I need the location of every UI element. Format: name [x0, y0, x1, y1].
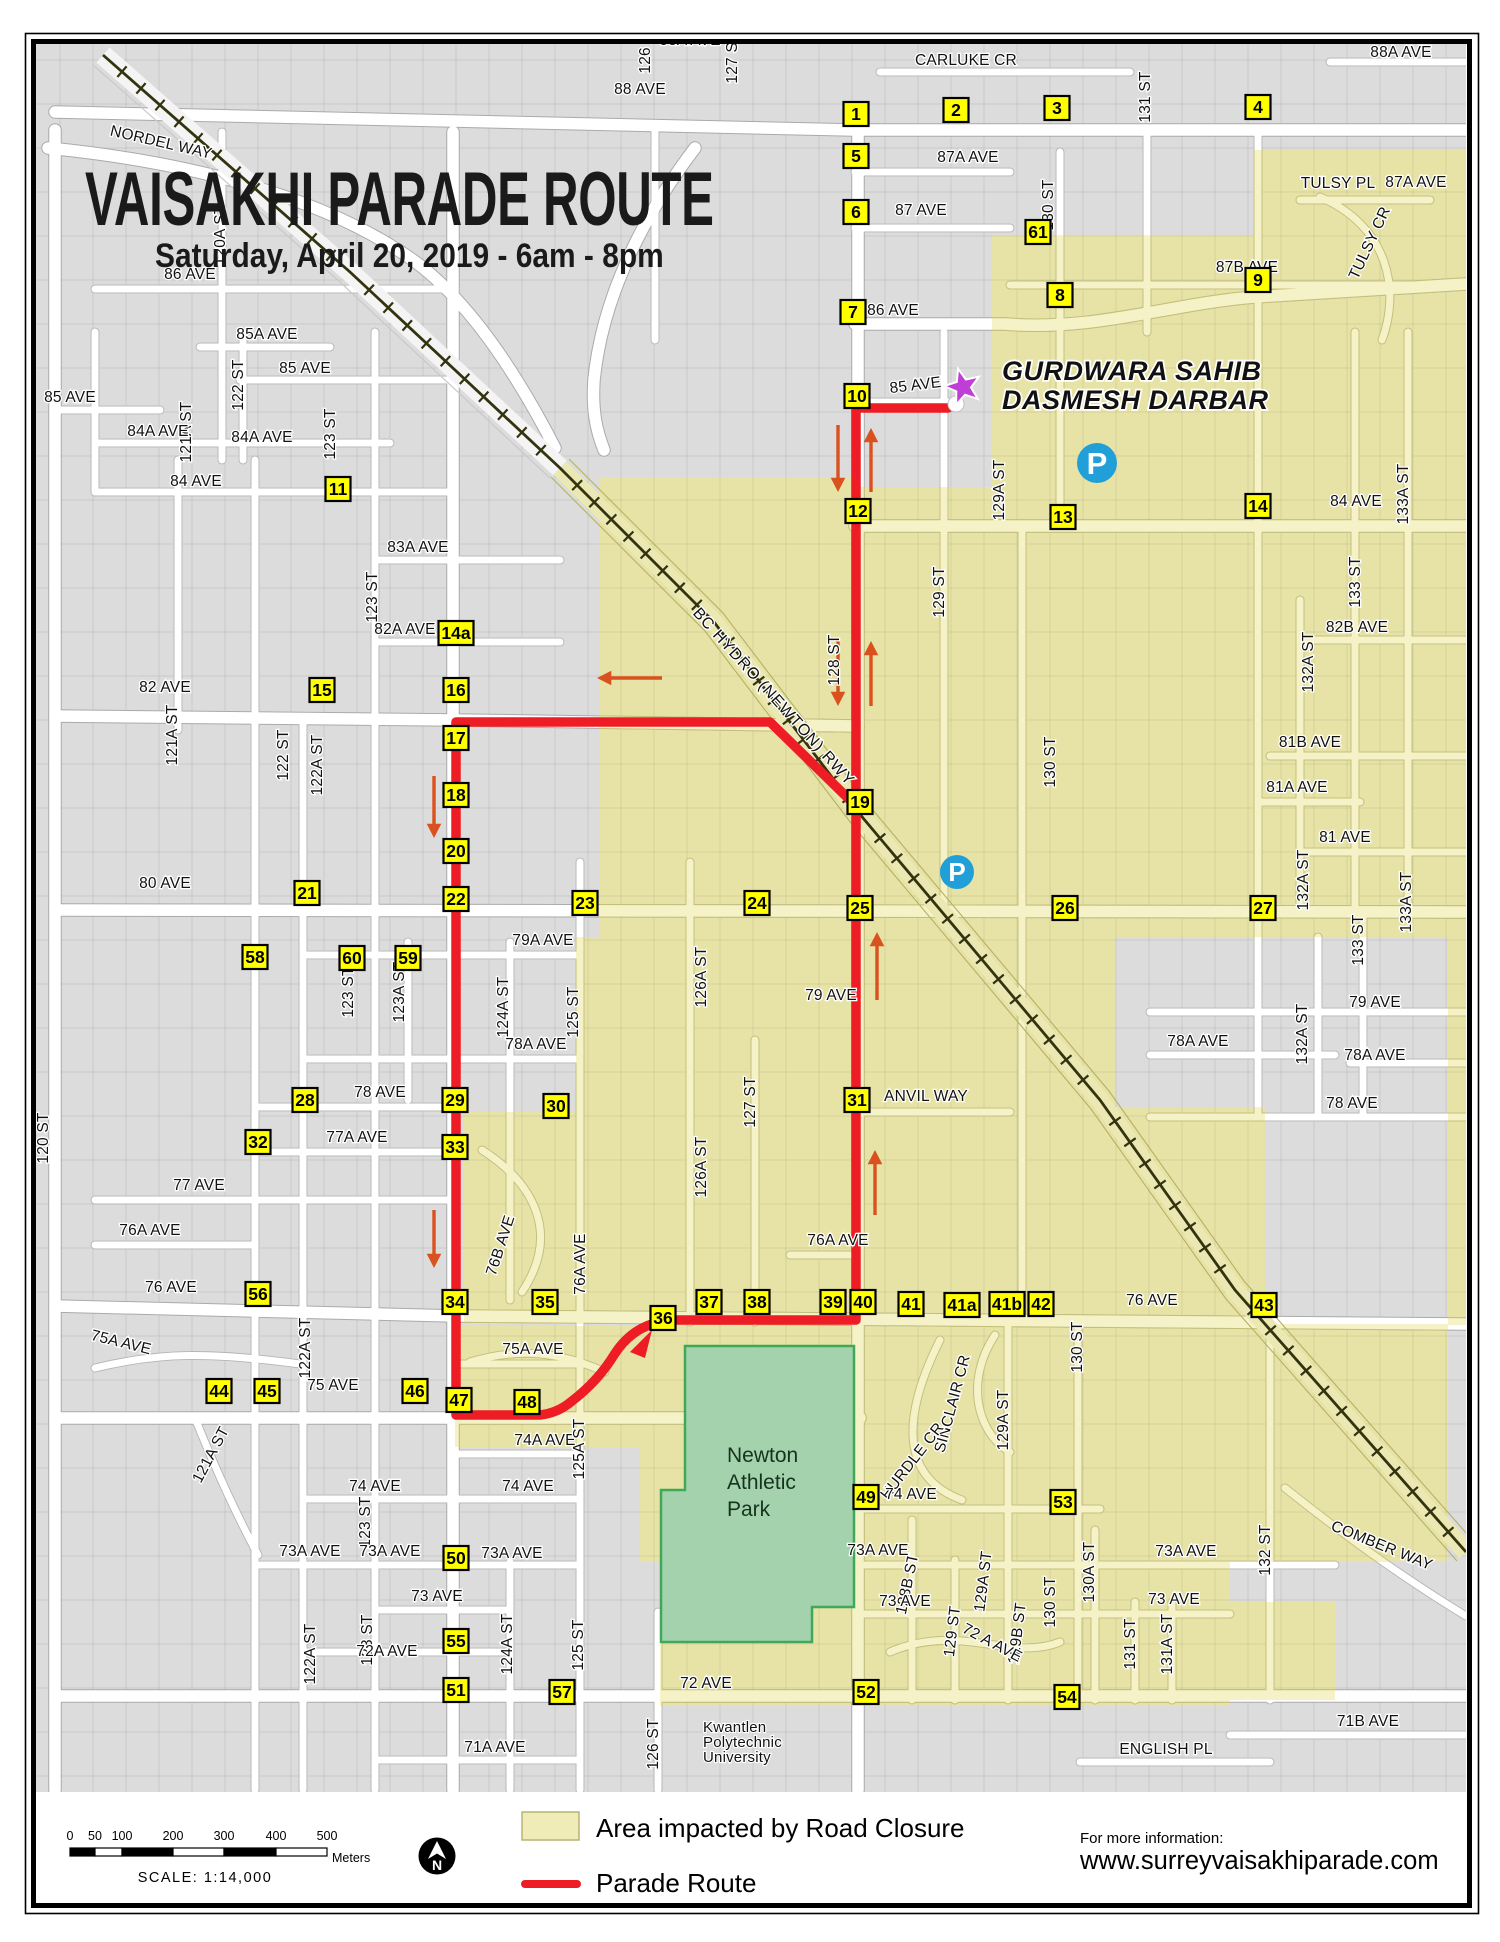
svg-text:126A ST: 126A ST — [693, 946, 710, 1007]
svg-text:8: 8 — [1055, 285, 1065, 305]
svg-text:TULSY PL: TULSY PL — [1301, 175, 1376, 192]
svg-text:15: 15 — [312, 680, 332, 700]
svg-text:41a: 41a — [947, 1295, 976, 1315]
svg-text:73A AVE: 73A AVE — [1155, 1543, 1216, 1560]
svg-text:74 AVE: 74 AVE — [885, 1486, 937, 1503]
svg-text:www.surreyvaisakhiparade.com: www.surreyvaisakhiparade.com — [1079, 1847, 1439, 1875]
svg-text:79 AVE: 79 AVE — [805, 987, 857, 1004]
svg-text:59: 59 — [398, 948, 418, 968]
svg-text:200: 200 — [163, 1829, 184, 1843]
svg-text:28: 28 — [295, 1090, 315, 1110]
svg-text:9: 9 — [1253, 270, 1263, 290]
svg-text:5: 5 — [851, 146, 861, 166]
svg-text:87A AVE: 87A AVE — [1385, 174, 1446, 191]
svg-text:35: 35 — [535, 1292, 555, 1312]
svg-text:123 ST: 123 ST — [322, 408, 339, 460]
svg-text:58: 58 — [245, 947, 265, 967]
svg-text:122A ST: 122A ST — [302, 1623, 319, 1684]
svg-text:SCALE: 1:14,000: SCALE: 1:14,000 — [138, 1870, 273, 1886]
svg-text:73A AVE: 73A AVE — [359, 1543, 420, 1560]
svg-text:53: 53 — [1053, 1492, 1073, 1512]
svg-text:47: 47 — [449, 1390, 468, 1410]
svg-text:81A AVE: 81A AVE — [1266, 779, 1327, 796]
svg-text:43: 43 — [1254, 1295, 1274, 1315]
svg-text:34: 34 — [445, 1292, 465, 1312]
svg-text:81B AVE: 81B AVE — [1279, 734, 1341, 751]
svg-text:132A ST: 132A ST — [1295, 849, 1312, 910]
svg-text:82B AVE: 82B AVE — [1326, 619, 1388, 636]
svg-text:78A AVE: 78A AVE — [505, 1036, 566, 1053]
svg-text:Athletic: Athletic — [727, 1471, 796, 1494]
svg-text:Parade Route: Parade Route — [596, 1868, 756, 1898]
svg-text:Park: Park — [727, 1498, 771, 1521]
svg-text:100: 100 — [112, 1829, 133, 1843]
svg-text:74 AVE: 74 AVE — [349, 1478, 401, 1495]
svg-text:42: 42 — [1031, 1294, 1051, 1314]
svg-text:1: 1 — [851, 104, 861, 124]
svg-text:130 ST: 130 ST — [1069, 1321, 1086, 1373]
svg-text:88 AVE: 88 AVE — [614, 81, 666, 98]
svg-text:40: 40 — [853, 1292, 873, 1312]
svg-text:0: 0 — [67, 1829, 74, 1843]
svg-text:50: 50 — [446, 1548, 466, 1568]
svg-text:Newton: Newton — [727, 1444, 798, 1467]
svg-text:133A ST: 133A ST — [1398, 871, 1415, 932]
svg-text:83A AVE: 83A AVE — [387, 539, 448, 556]
svg-text:72A AVE: 72A AVE — [356, 1643, 417, 1660]
svg-text:73A AVE: 73A AVE — [847, 1542, 908, 1559]
svg-text:39: 39 — [823, 1292, 843, 1312]
svg-text:24: 24 — [747, 893, 767, 913]
svg-text:85 AVE: 85 AVE — [279, 360, 331, 377]
svg-text:13: 13 — [1053, 507, 1073, 527]
svg-text:73 AVE: 73 AVE — [879, 1593, 931, 1610]
svg-text:125 ST: 125 ST — [565, 986, 582, 1038]
svg-text:21: 21 — [297, 883, 317, 903]
svg-text:131 ST: 131 ST — [1137, 71, 1154, 123]
svg-text:129A ST: 129A ST — [991, 459, 1008, 520]
svg-text:37: 37 — [699, 1292, 718, 1312]
svg-text:124A ST: 124A ST — [495, 976, 512, 1037]
svg-text:CARLUKE CR: CARLUKE CR — [915, 52, 1017, 69]
svg-text:73A AVE: 73A AVE — [481, 1545, 542, 1562]
svg-text:ANVIL WAY: ANVIL WAY — [884, 1088, 968, 1105]
svg-text:56: 56 — [248, 1284, 268, 1304]
svg-text:46: 46 — [405, 1381, 425, 1401]
svg-text:48: 48 — [517, 1392, 537, 1412]
svg-text:44: 44 — [209, 1381, 229, 1401]
svg-text:14a: 14a — [441, 623, 470, 643]
svg-text:74A AVE: 74A AVE — [514, 1432, 575, 1449]
svg-text:33: 33 — [445, 1137, 465, 1157]
svg-text:81 AVE: 81 AVE — [1319, 829, 1371, 846]
svg-text:124A ST: 124A ST — [499, 1613, 516, 1674]
svg-text:132A ST: 132A ST — [1294, 1003, 1311, 1064]
svg-text:76 AVE: 76 AVE — [1126, 1292, 1178, 1309]
svg-text:133A ST: 133A ST — [1395, 463, 1412, 524]
svg-text:73 AVE: 73 AVE — [1148, 1591, 1200, 1608]
svg-text:129 ST: 129 ST — [931, 566, 948, 618]
svg-text:University: University — [703, 1749, 771, 1766]
svg-text:78 AVE: 78 AVE — [354, 1084, 406, 1101]
svg-text:31: 31 — [847, 1090, 867, 1110]
svg-text:32: 32 — [248, 1132, 268, 1152]
svg-text:84A AVE: 84A AVE — [127, 423, 188, 440]
svg-text:25: 25 — [850, 898, 870, 918]
svg-text:N: N — [432, 1857, 442, 1873]
svg-text:75A AVE: 75A AVE — [502, 1341, 563, 1358]
svg-text:29: 29 — [445, 1090, 465, 1110]
svg-text:DASMESH DARBAR: DASMESH DARBAR — [1002, 385, 1269, 415]
svg-text:P: P — [948, 857, 965, 887]
svg-text:76A AVE: 76A AVE — [807, 1232, 868, 1249]
svg-text:400: 400 — [266, 1829, 287, 1843]
svg-text:120 ST: 120 ST — [35, 1112, 52, 1164]
svg-text:126 ST: 126 ST — [645, 1718, 662, 1770]
svg-text:130A ST: 130A ST — [1081, 1541, 1098, 1602]
svg-text:122A ST: 122A ST — [309, 734, 326, 795]
svg-text:12: 12 — [848, 501, 868, 521]
svg-text:500: 500 — [317, 1829, 338, 1843]
svg-text:50: 50 — [88, 1829, 102, 1843]
svg-text:79A AVE: 79A AVE — [512, 932, 573, 949]
svg-text:27: 27 — [1253, 898, 1272, 918]
svg-text:122 ST: 122 ST — [230, 359, 247, 411]
svg-text:122 ST: 122 ST — [275, 729, 292, 781]
svg-text:54: 54 — [1057, 1687, 1077, 1707]
svg-text:131A ST: 131A ST — [1159, 1613, 1176, 1674]
svg-text:300: 300 — [214, 1829, 235, 1843]
svg-text:84 AVE: 84 AVE — [1330, 493, 1382, 510]
svg-text:123 ST: 123 ST — [357, 1496, 374, 1548]
svg-text:88A AVE: 88A AVE — [1370, 44, 1431, 61]
svg-text:78A AVE: 78A AVE — [1167, 1033, 1228, 1050]
svg-text:7: 7 — [848, 302, 858, 322]
svg-text:61: 61 — [1028, 222, 1048, 242]
svg-text:GURDWARA SAHIB: GURDWARA SAHIB — [1002, 356, 1262, 386]
svg-text:6: 6 — [851, 202, 861, 222]
svg-text:76A AVE: 76A AVE — [572, 1233, 589, 1294]
svg-text:22: 22 — [446, 889, 466, 909]
svg-text:85A AVE: 85A AVE — [236, 326, 297, 343]
svg-text:80 AVE: 80 AVE — [139, 875, 191, 892]
svg-text:VAISAKHI PARADE ROUTE: VAISAKHI PARADE ROUTE — [85, 156, 714, 241]
svg-text:19: 19 — [850, 792, 870, 812]
svg-text:30: 30 — [546, 1096, 566, 1116]
svg-text:84 AVE: 84 AVE — [170, 473, 222, 490]
svg-text:41b: 41b — [992, 1294, 1022, 1314]
svg-text:132A ST: 132A ST — [1300, 631, 1317, 692]
svg-text:86 AVE: 86 AVE — [867, 302, 919, 319]
svg-text:11: 11 — [329, 479, 348, 499]
svg-text:128 ST: 128 ST — [826, 634, 843, 686]
svg-text:72 AVE: 72 AVE — [680, 1675, 732, 1692]
svg-text:26: 26 — [1055, 898, 1075, 918]
svg-text:79 AVE: 79 AVE — [1349, 994, 1401, 1011]
svg-text:41: 41 — [901, 1294, 921, 1314]
svg-text:17: 17 — [446, 728, 465, 748]
svg-text:77A AVE: 77A AVE — [326, 1129, 387, 1146]
svg-text:126A ST: 126A ST — [693, 1136, 710, 1197]
svg-text:60: 60 — [342, 948, 362, 968]
svg-text:23: 23 — [575, 893, 595, 913]
svg-text:78 AVE: 78 AVE — [1326, 1095, 1378, 1112]
svg-text:75 AVE: 75 AVE — [307, 1377, 359, 1394]
svg-text:57: 57 — [552, 1682, 571, 1702]
svg-text:78A AVE: 78A AVE — [1344, 1047, 1405, 1064]
svg-text:P: P — [1087, 446, 1108, 481]
svg-text:20: 20 — [446, 841, 466, 861]
svg-text:131 ST: 131 ST — [1122, 1618, 1139, 1670]
svg-text:85 AVE: 85 AVE — [44, 389, 96, 406]
svg-text:87 AVE: 87 AVE — [895, 202, 947, 219]
svg-text:Saturday, April 20, 2019 - 6am: Saturday, April 20, 2019 - 6am - 8pm — [155, 236, 664, 274]
svg-text:76A AVE: 76A AVE — [119, 1222, 180, 1239]
svg-text:Meters: Meters — [332, 1851, 370, 1865]
svg-text:36: 36 — [653, 1308, 673, 1328]
svg-text:122A ST: 122A ST — [297, 1317, 314, 1378]
svg-text:38: 38 — [747, 1292, 767, 1312]
svg-text:73A AVE: 73A AVE — [279, 1543, 340, 1560]
svg-text:2: 2 — [951, 100, 961, 120]
svg-text:82 AVE: 82 AVE — [139, 679, 191, 696]
svg-text:125A ST: 125A ST — [571, 1418, 588, 1479]
svg-text:16: 16 — [446, 680, 466, 700]
svg-text:132 ST: 132 ST — [1257, 1524, 1274, 1576]
svg-text:49: 49 — [856, 1487, 876, 1507]
svg-text:130 ST: 130 ST — [1042, 736, 1059, 788]
svg-text:55: 55 — [446, 1631, 466, 1651]
svg-text:Area impacted by Road Closure: Area impacted by Road Closure — [596, 1813, 965, 1843]
svg-text:127 ST: 127 ST — [742, 1076, 759, 1128]
svg-text:4: 4 — [1253, 97, 1263, 117]
svg-text:74 AVE: 74 AVE — [502, 1478, 554, 1495]
svg-text:123 ST: 123 ST — [364, 571, 381, 623]
svg-text:52: 52 — [856, 1682, 876, 1702]
svg-text:For more information:: For more information: — [1080, 1830, 1223, 1847]
svg-text:130 ST: 130 ST — [1042, 1576, 1059, 1628]
svg-text:133 ST: 133 ST — [1347, 556, 1364, 608]
svg-text:14: 14 — [1248, 496, 1268, 516]
svg-text:3: 3 — [1052, 98, 1062, 118]
svg-text:133 ST: 133 ST — [1350, 914, 1367, 966]
svg-text:82A AVE: 82A AVE — [374, 621, 435, 638]
svg-text:123 ST: 123 ST — [340, 966, 357, 1018]
svg-text:129A ST: 129A ST — [995, 1389, 1012, 1450]
svg-text:84A AVE: 84A AVE — [231, 429, 292, 446]
svg-text:ENGLISH PL: ENGLISH PL — [1119, 1741, 1212, 1758]
svg-text:121A ST: 121A ST — [164, 704, 181, 765]
svg-text:87A AVE: 87A AVE — [937, 149, 998, 166]
svg-text:77 AVE: 77 AVE — [173, 1177, 225, 1194]
svg-text:10: 10 — [847, 386, 867, 406]
svg-text:71B AVE: 71B AVE — [1337, 1713, 1399, 1730]
svg-text:45: 45 — [257, 1381, 277, 1401]
svg-text:76 AVE: 76 AVE — [145, 1279, 197, 1296]
svg-text:71A AVE: 71A AVE — [464, 1739, 525, 1756]
svg-text:18: 18 — [446, 785, 466, 805]
svg-text:73 AVE: 73 AVE — [411, 1588, 463, 1605]
svg-text:125 ST: 125 ST — [570, 1619, 587, 1671]
svg-text:51: 51 — [446, 1680, 466, 1700]
